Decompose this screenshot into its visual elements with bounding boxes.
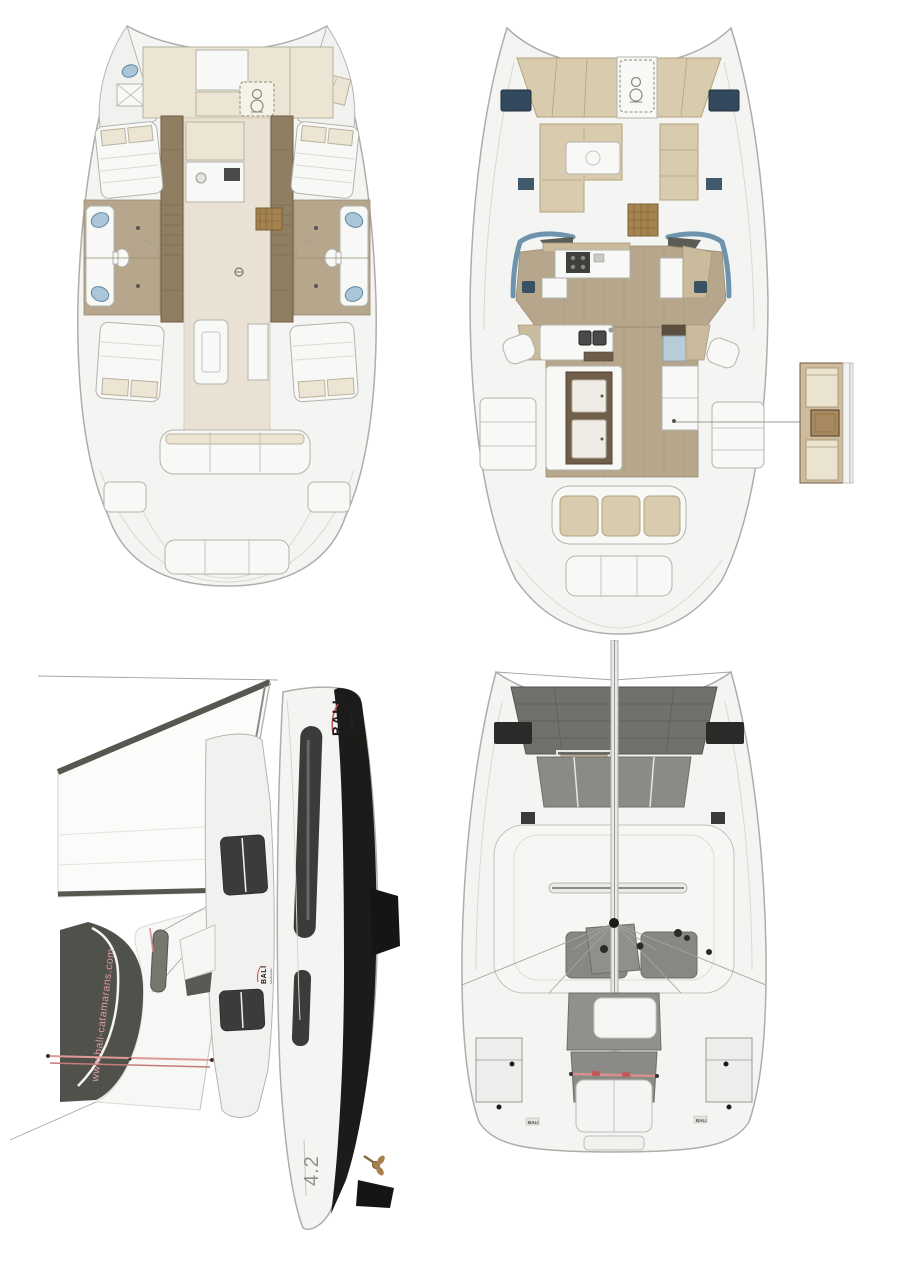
cockpit-table (594, 998, 656, 1038)
mast-foot (609, 918, 619, 928)
cabin-aft-port (95, 322, 164, 402)
pillow (327, 378, 354, 396)
deck-hatch (501, 90, 531, 111)
hull-logo-subtext: catamarans (270, 968, 273, 984)
deck-hatch-small (706, 178, 722, 190)
stern-locker-port (476, 1038, 522, 1102)
cabin-aft-starboard (289, 322, 358, 402)
bulkhead-port (161, 116, 183, 322)
galley-unit (186, 122, 244, 160)
logo-subtext: catamarans (349, 707, 354, 736)
outer-hull (277, 687, 400, 1229)
detail-panel-top (806, 368, 838, 407)
pillow (128, 125, 153, 142)
winch-icon (600, 945, 608, 953)
pillow (301, 125, 326, 142)
swim-platform (566, 556, 672, 596)
bathroom-starboard (294, 200, 370, 315)
hull-window-short (292, 970, 312, 1047)
hull-window (694, 281, 707, 293)
deck-mark-starboard: BALI (694, 1116, 707, 1123)
aft-locker (308, 482, 350, 512)
winch-icon (637, 943, 644, 950)
deck-mark-port-text: BALI (528, 1120, 539, 1125)
hull-logo-text: BALI (261, 965, 268, 984)
rattan-mat (256, 208, 282, 230)
cabinet-handle (672, 419, 676, 423)
nav-cabinet (660, 258, 683, 298)
skeg-fin (356, 1180, 394, 1208)
deck-mark-port: BALI (526, 1118, 539, 1125)
panel-main-deck-plan (454, 0, 908, 640)
faucet (609, 328, 614, 333)
profile-view: www.bali-catamarans.com (0, 640, 454, 1280)
wine-cooler (663, 336, 686, 361)
deck-hatch-small (521, 812, 535, 824)
rattan-mat (628, 204, 658, 236)
pillow (101, 128, 126, 145)
bathroom-port (84, 200, 160, 315)
cabin-forward-port (94, 121, 163, 199)
forestay-line (38, 676, 278, 680)
cabinet (248, 324, 268, 380)
hull-window (522, 281, 535, 293)
winch-icon (706, 949, 712, 955)
detail-panel-bottom (806, 440, 838, 480)
winch-icon (684, 935, 690, 941)
bench-cushion (602, 496, 640, 536)
deck-hatch-small (518, 178, 534, 190)
panel-deck-top-view: BALI BALI (454, 640, 908, 1280)
deck-hatch (709, 90, 739, 111)
main-deck-plan (454, 0, 908, 640)
deck-hatch-small (711, 812, 725, 824)
cabin-forward-starboard (290, 121, 359, 199)
cleat-icon (497, 1105, 502, 1110)
aft-bench (552, 486, 686, 596)
cleat-icon (724, 1062, 729, 1067)
side-locker-starboard (712, 402, 764, 468)
bench-cushion (644, 496, 680, 536)
side-locker-port (480, 398, 536, 470)
sink-basin (579, 331, 591, 345)
pillow (328, 128, 353, 145)
lower-deck-plan (0, 0, 454, 640)
fwd-sofa-starboard (660, 124, 698, 200)
cleat-icon (510, 1062, 515, 1067)
model-text: 4.2 (301, 1155, 323, 1186)
saloon-table (194, 320, 228, 384)
aft-counter (662, 325, 686, 336)
propeller-icon (364, 1154, 386, 1177)
saloon-corridor (184, 118, 282, 470)
galley-sink (196, 173, 206, 183)
logo-text: BALI (329, 699, 345, 736)
bali-4_2-layout-sheet: www.bali-catamarans.com (0, 0, 908, 1280)
keel-fin (370, 888, 400, 956)
pillow (298, 380, 325, 398)
forward-galley-units (143, 47, 333, 118)
aft-locker (104, 482, 146, 512)
stove (224, 168, 240, 181)
winch-icon (674, 929, 682, 937)
stern-step (584, 1136, 644, 1150)
cleat-icon (727, 1105, 732, 1110)
windlass-icon (240, 82, 274, 116)
anchor-locker (617, 57, 657, 118)
pillow (102, 378, 129, 396)
deck-hatch (494, 722, 532, 744)
panel-profile-view: www.bali-catamarans.com (0, 640, 454, 1280)
stern-locker-starboard (706, 1038, 752, 1102)
foredeck (501, 57, 739, 118)
galley-return (542, 278, 567, 298)
swim-platform (165, 540, 289, 574)
bench-cushion (560, 496, 598, 536)
cooktop (566, 252, 590, 273)
panel-lower-deck-plan (0, 0, 454, 640)
boom (150, 930, 168, 993)
fwd-table (566, 142, 620, 174)
deck-mark-starboard-text: BALI (696, 1118, 707, 1123)
sink-basin (593, 331, 606, 345)
deck-hatch (706, 722, 744, 744)
pillow (131, 380, 158, 398)
deck-top-view: BALI BALI (454, 640, 908, 1280)
